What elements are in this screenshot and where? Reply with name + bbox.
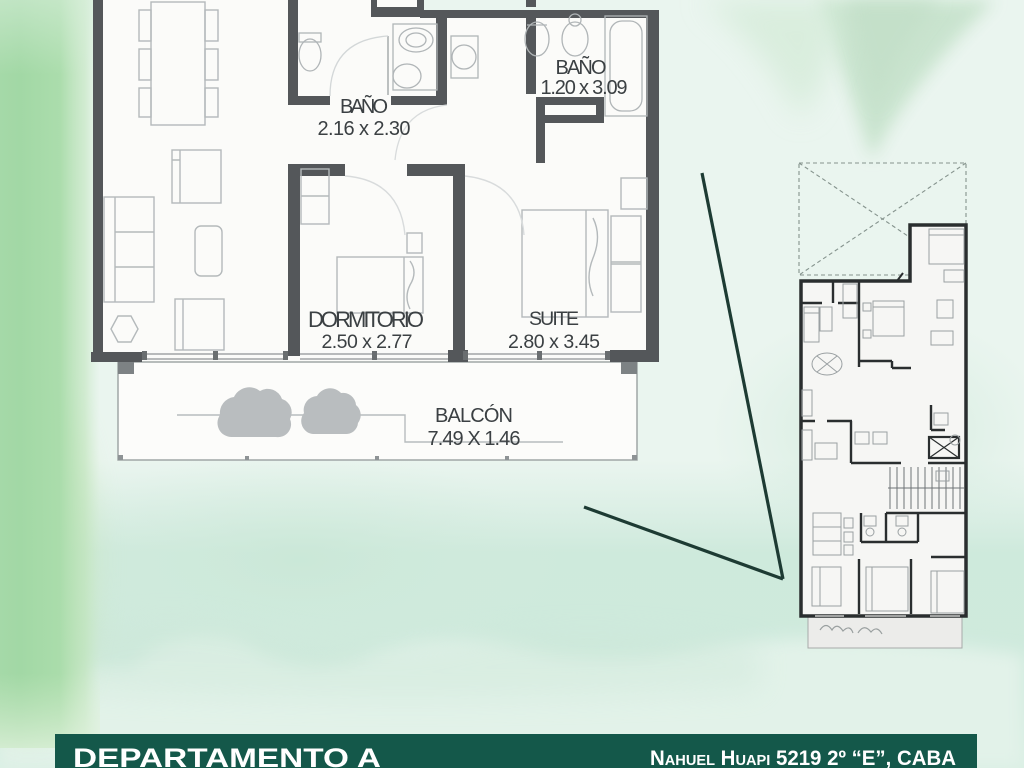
svg-text:1.20 x 3.09: 1.20 x 3.09 (541, 77, 628, 99)
svg-text:2.80 x 3.45: 2.80 x 3.45 (508, 331, 600, 353)
svg-text:SUITE: SUITE (529, 308, 579, 330)
svg-text:7.49 X 1.46: 7.49 X 1.46 (428, 428, 521, 450)
svg-text:BAÑO: BAÑO (340, 94, 388, 118)
svg-text:2.16 x 2.30: 2.16 x 2.30 (318, 118, 411, 140)
svg-text:DEPARTAMENTO A: DEPARTAMENTO A (73, 743, 381, 768)
svg-text:2.50 x 2.77: 2.50 x 2.77 (322, 331, 413, 353)
svg-text:BAÑO: BAÑO (556, 55, 607, 79)
svg-text:BALCÓN: BALCÓN (435, 404, 513, 427)
svg-text:DORMITORIO: DORMITORIO (308, 307, 424, 332)
